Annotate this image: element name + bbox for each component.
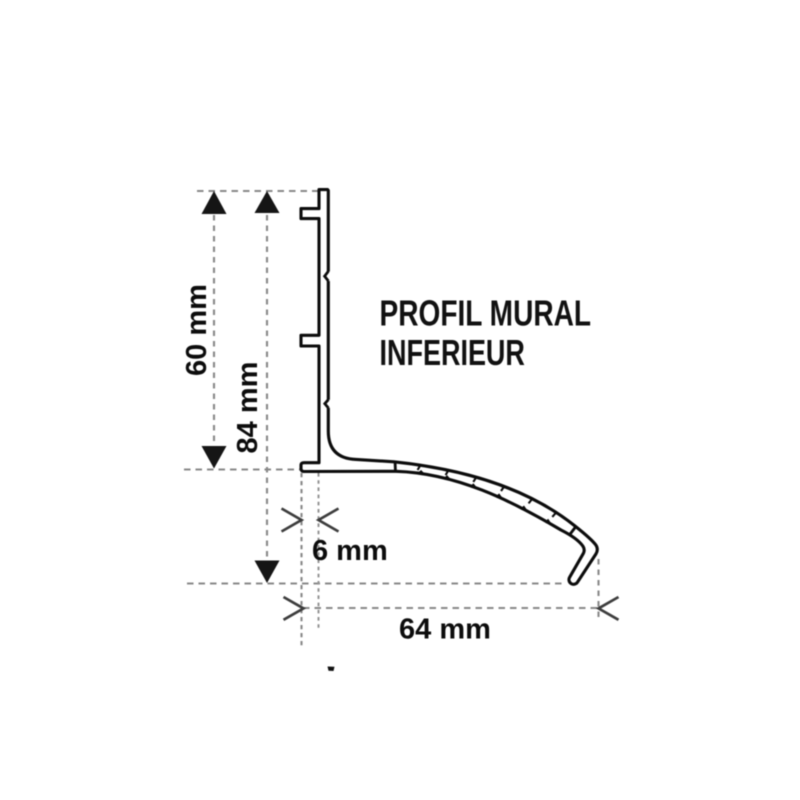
svg-text:6 mm: 6 mm	[312, 535, 388, 567]
svg-text:84 mm: 84 mm	[232, 362, 264, 454]
svg-text:64 mm: 64 mm	[399, 614, 491, 646]
svg-text:INFERIEUR: INFERIEUR	[380, 332, 525, 373]
svg-text:PROFIL MURAL: PROFIL MURAL	[380, 293, 592, 333]
svg-text:60 mm: 60 mm	[181, 284, 213, 376]
